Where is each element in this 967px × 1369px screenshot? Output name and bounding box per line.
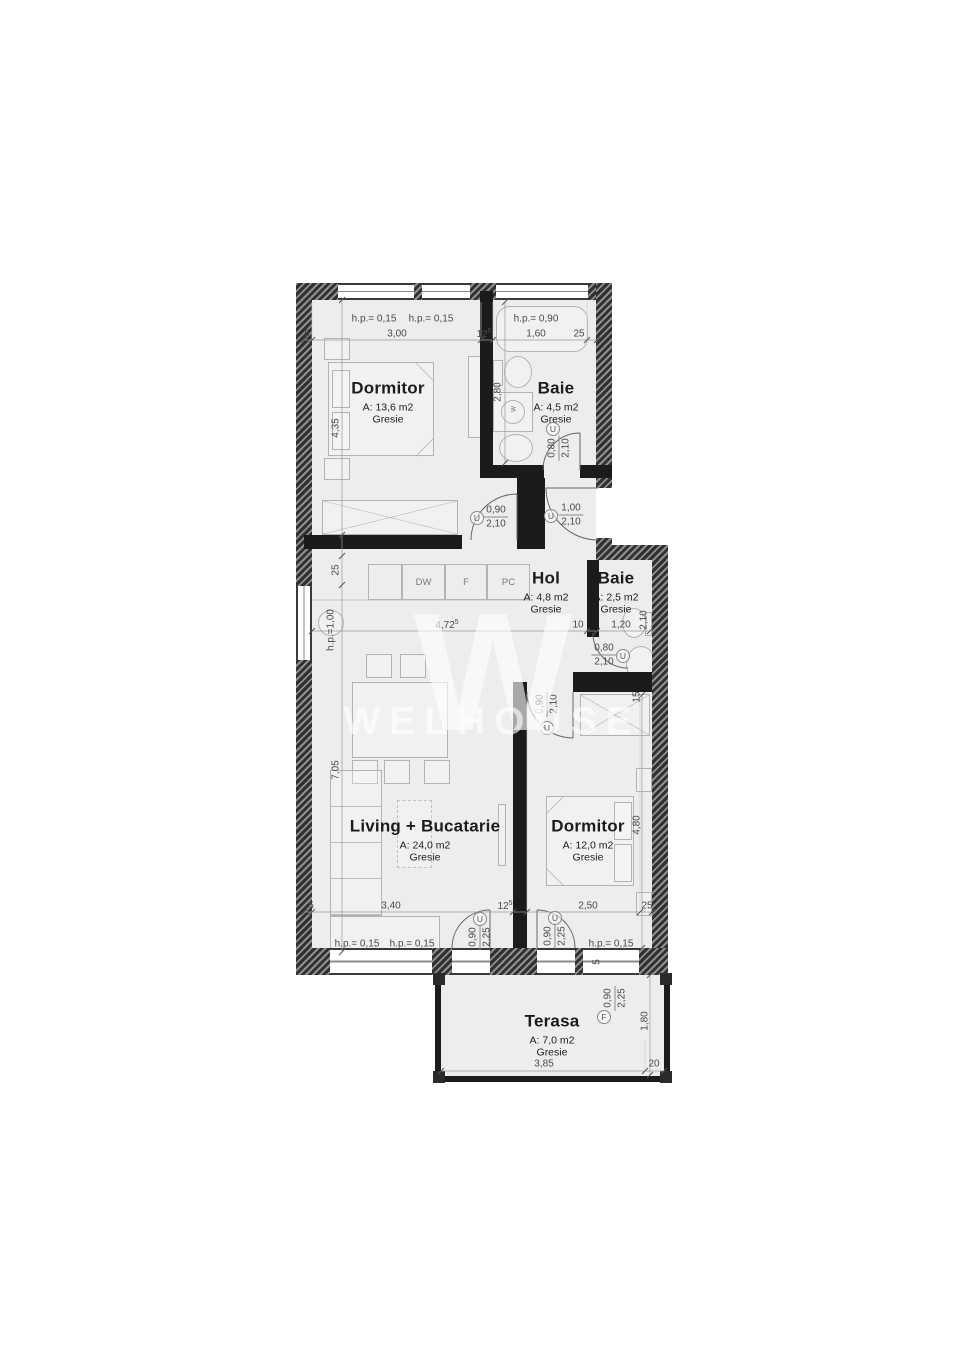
dim-label: 7,05 — [331, 760, 342, 779]
room-floor: Gresie — [594, 604, 639, 616]
window-symbol-f: F — [597, 1010, 611, 1024]
door-size-baie2: 0,802,10 — [591, 642, 616, 669]
room-floor: Gresie — [551, 852, 624, 864]
door-size-dormitor1: 0,902,10 — [483, 504, 508, 531]
room-label-living: Living + Bucatarie A: 24,0 m2 Gresie — [350, 817, 501, 864]
room-name: Hol — [524, 569, 569, 589]
room-area: A: 7,0 m2 — [525, 1035, 580, 1047]
dim-label: 15 — [632, 691, 643, 702]
door-symbol-u: U — [544, 509, 558, 523]
door-symbol-u: U — [473, 912, 487, 926]
plan-linework — [0, 0, 967, 1369]
dim-label: 1,80 — [640, 1011, 651, 1030]
dim-label: 4,35 — [331, 418, 342, 437]
room-area: A: 4,8 m2 — [524, 592, 569, 604]
room-label-hol: Hol A: 4,8 m2 Gresie — [524, 569, 569, 616]
dim-label: 20 — [648, 1059, 659, 1070]
floor-plan-canvas: DW F PC — [0, 0, 967, 1369]
door-size-living-terrace: 0,902,25 — [467, 924, 494, 949]
dim-label: 5 — [308, 901, 314, 912]
room-area: A: 2,5 m2 — [594, 592, 639, 604]
dim-label: 3,85 — [534, 1059, 553, 1070]
dim-parapet-label: h.p.= 0,90 — [514, 314, 559, 325]
room-label-dormitor-1: Dormitor A: 13,6 m2 Gresie — [351, 379, 424, 426]
room-label-baie-2: Baie A: 2,5 m2 Gresie — [594, 569, 639, 616]
dim-label: 2,50 — [578, 901, 597, 912]
dim-label: 125 — [476, 328, 491, 340]
dim-label: 125 — [497, 900, 512, 912]
door-symbol-u: U — [470, 511, 484, 525]
dim-parapet-label: h.p.= 0,15 — [335, 939, 380, 950]
dim-label: 5 — [304, 329, 310, 340]
door-size-baie1: 0,802,10 — [546, 435, 573, 460]
dim-parapet-label: h.p.= 0,15 — [390, 939, 435, 950]
dim-label: 10 — [572, 620, 583, 631]
door-size-terasa-fixed: 0,902,25 — [602, 985, 629, 1010]
dim-label: 3,40 — [381, 901, 400, 912]
dim-label: 1,60 — [526, 329, 545, 340]
room-name: Dormitor — [551, 817, 624, 837]
room-floor: Gresie — [524, 604, 569, 616]
room-name: Living + Bucatarie — [350, 817, 501, 837]
dim-label: 2,10 — [639, 610, 650, 629]
room-name: Baie — [594, 569, 639, 589]
room-floor: Gresie — [351, 414, 424, 426]
room-area: A: 4,5 m2 — [534, 402, 579, 414]
dim-parapet-label: h.p.= 0,15 — [352, 314, 397, 325]
room-name: Baie — [534, 379, 579, 399]
dim-label: 4,725 — [435, 619, 458, 631]
dim-label: 2,80 — [493, 382, 504, 401]
washer-label: w — [509, 406, 518, 412]
room-area: A: 13,6 m2 — [351, 402, 424, 414]
dim-label: 4,80 — [632, 815, 643, 834]
room-floor: Gresie — [350, 852, 501, 864]
dim-label: 25 — [331, 564, 342, 575]
dim-parapet-label: h.p.= 0,15 — [409, 314, 454, 325]
dim-label: 25 — [573, 329, 584, 340]
room-label-terasa: Terasa A: 7,0 m2 Gresie — [525, 1012, 580, 1059]
dim-parapet-label: h.p.= 0,15 — [589, 939, 634, 950]
door-symbol-u: U — [548, 911, 562, 925]
room-name: Dormitor — [351, 379, 424, 399]
room-area: A: 12,0 m2 — [551, 840, 624, 852]
door-symbol-u: U — [616, 649, 630, 663]
room-name: Terasa — [525, 1012, 580, 1032]
room-label-dormitor-2: Dormitor A: 12,0 m2 Gresie — [551, 817, 624, 864]
room-label-baie-1: Baie A: 4,5 m2 Gresie — [534, 379, 579, 426]
door-size-dormitor2-terrace: 0,902,25 — [542, 923, 569, 948]
room-floor: Gresie — [525, 1047, 580, 1059]
door-symbol-u: U — [546, 422, 560, 436]
door-symbol-u: U — [540, 721, 554, 735]
door-size-dormitor2: 0,902,10 — [534, 691, 561, 716]
dim-label: 1,20 — [611, 620, 630, 631]
dim-label: 25 — [641, 901, 652, 912]
door-size-entrance: 1,002,10 — [558, 502, 583, 529]
dim-label: 3,00 — [387, 329, 406, 340]
dim-parapet-label: h.p.=1,00 — [326, 609, 337, 651]
dim-label: 5 — [592, 959, 603, 965]
room-area: A: 24,0 m2 — [350, 840, 501, 852]
